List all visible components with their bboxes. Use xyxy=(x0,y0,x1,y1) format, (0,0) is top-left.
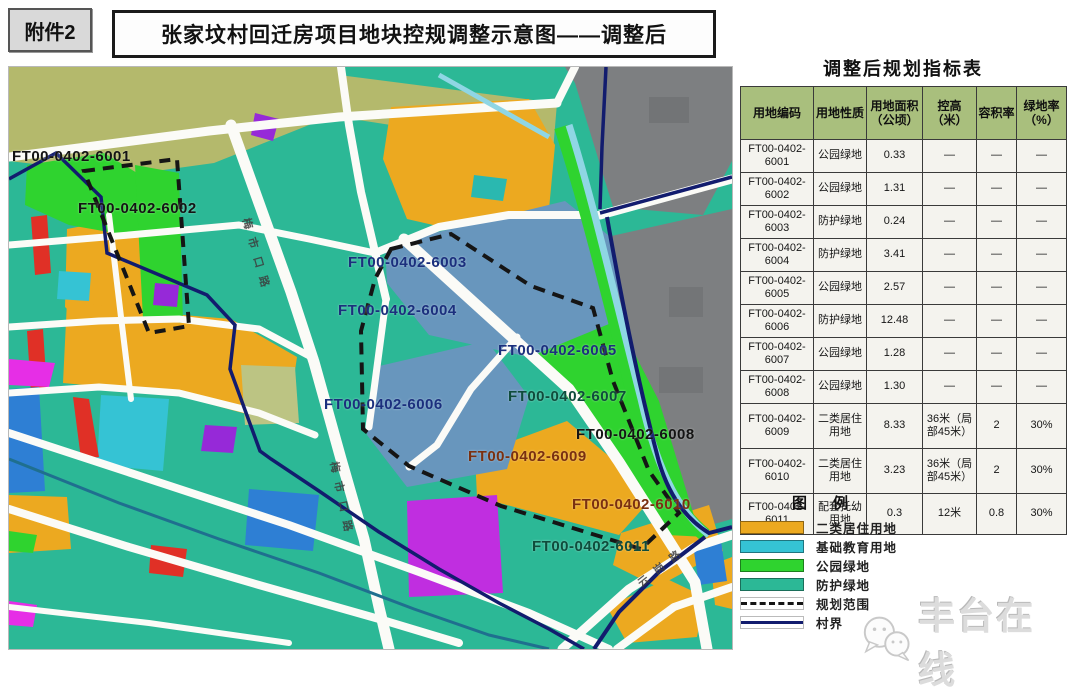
table-cell-use: 公园绿地 xyxy=(814,371,867,404)
table-row: FT00-0402-6006防护绿地12.48——— xyxy=(741,305,1067,338)
legend-swatch-swatch xyxy=(740,540,804,553)
table-cell-code: FT00-0402-6010 xyxy=(741,449,814,494)
table-cell-green: — xyxy=(1017,272,1067,305)
table-row: FT00-0402-6005公园绿地2.57——— xyxy=(741,272,1067,305)
table-cell-use: 公园绿地 xyxy=(814,173,867,206)
watermark-text: 丰台在线 xyxy=(918,586,1070,694)
table-row: FT00-0402-6010二类居住用地3.2336米（局部45米）230% xyxy=(741,449,1067,494)
legend-swatch-swatch xyxy=(740,559,804,572)
table-cell-area: 3.23 xyxy=(867,449,923,494)
watermark: 丰台在线 xyxy=(858,586,1070,694)
table-cell-green: — xyxy=(1017,305,1067,338)
table-cell-far: — xyxy=(977,338,1017,371)
table-cell-height: — xyxy=(923,272,977,305)
planning-map xyxy=(8,66,733,650)
legend-label: 公园绿地 xyxy=(816,556,870,575)
table-cell-use: 公园绿地 xyxy=(814,338,867,371)
table-row: FT00-0402-6007公园绿地1.28——— xyxy=(741,338,1067,371)
page-title: 张家坟村回迁房项目地块控规调整示意图——调整后 xyxy=(161,19,667,49)
map-region-teal-diamond xyxy=(471,175,507,201)
table-row: FT00-0402-6008公园绿地1.30——— xyxy=(741,371,1067,404)
building-hint xyxy=(649,97,689,123)
table-cell-area: 1.28 xyxy=(867,338,923,371)
wechat-icon xyxy=(858,612,918,668)
legend-label: 基础教育用地 xyxy=(816,537,897,556)
table-cell-code: FT00-0402-6002 xyxy=(741,173,814,206)
table-cell-area: 2.57 xyxy=(867,272,923,305)
table-row: FT00-0402-6004防护绿地3.41——— xyxy=(741,239,1067,272)
table-cell-far: — xyxy=(977,173,1017,206)
table-row: FT00-0402-6009二类居住用地8.3336米（局部45米）230% xyxy=(741,404,1067,449)
table-cell-area: 0.24 xyxy=(867,206,923,239)
table-cell-code: FT00-0402-6006 xyxy=(741,305,814,338)
map-region-purple-c xyxy=(201,425,237,453)
table-cell-height: — xyxy=(923,338,977,371)
table-cell-code: FT00-0402-6003 xyxy=(741,206,814,239)
table-cell-code: FT00-0402-6001 xyxy=(741,140,814,173)
table-cell-height: — xyxy=(923,371,977,404)
table-cell-far: — xyxy=(977,305,1017,338)
attachment-label: 附件2 xyxy=(24,16,75,45)
table-cell-code: FT00-0402-6005 xyxy=(741,272,814,305)
building-hint xyxy=(659,367,703,393)
legend-swatch-swatch xyxy=(740,521,804,534)
table-cell-far: — xyxy=(977,140,1017,173)
legend-item: 公园绿地 xyxy=(740,559,1070,572)
table-cell-area: 0.33 xyxy=(867,140,923,173)
table-cell-area: 1.31 xyxy=(867,173,923,206)
table-cell-code: FT00-0402-6008 xyxy=(741,371,814,404)
indicator-table-head: 用地编码用地性质用地面积（公顷）控高（米）容积率绿地率（%） xyxy=(741,87,1067,140)
table-cell-height: — xyxy=(923,305,977,338)
table-cell-use: 公园绿地 xyxy=(814,272,867,305)
table-header-cell: 用地面积（公顷） xyxy=(867,87,923,140)
table-row: FT00-0402-6002公园绿地1.31——— xyxy=(741,173,1067,206)
table-cell-far: 2 xyxy=(977,449,1017,494)
legend-item: 基础教育用地 xyxy=(740,540,1070,553)
table-cell-code: FT00-0402-6009 xyxy=(741,404,814,449)
table-header-cell: 用地性质 xyxy=(814,87,867,140)
table-cell-use: 二类居住用地 xyxy=(814,404,867,449)
table-cell-green: — xyxy=(1017,239,1067,272)
table-header-cell: 绿地率（%） xyxy=(1017,87,1067,140)
table-cell-code: FT00-0402-6004 xyxy=(741,239,814,272)
table-cell-far: — xyxy=(977,206,1017,239)
table-cell-height: — xyxy=(923,239,977,272)
legend-label: 村界 xyxy=(816,613,843,632)
table-cell-far: — xyxy=(977,239,1017,272)
legend-title: 图例 xyxy=(792,492,1070,513)
table-cell-use: 防护绿地 xyxy=(814,305,867,338)
table-cell-height: 36米（局部45米） xyxy=(923,449,977,494)
table-cell-far: — xyxy=(977,371,1017,404)
table-cell-use: 公园绿地 xyxy=(814,140,867,173)
table-cell-height: — xyxy=(923,140,977,173)
table-cell-green: — xyxy=(1017,338,1067,371)
attachment-badge: 附件2 xyxy=(8,8,92,52)
table-cell-green: — xyxy=(1017,206,1067,239)
table-title: 调整后规划指标表 xyxy=(740,55,1066,81)
table-cell-area: 3.41 xyxy=(867,239,923,272)
table-row: FT00-0402-6001公园绿地0.33——— xyxy=(741,140,1067,173)
table-cell-area: 8.33 xyxy=(867,404,923,449)
table-cell-height: 36米（局部45米） xyxy=(923,404,977,449)
map-region-cyan-a xyxy=(57,271,91,301)
table-header-row: 用地编码用地性质用地面积（公顷）控高（米）容积率绿地率（%） xyxy=(741,87,1067,140)
planning-map-svg xyxy=(9,67,732,649)
table-cell-area: 12.48 xyxy=(867,305,923,338)
map-region-magenta-a xyxy=(9,359,55,387)
map-region-cyan-b xyxy=(97,395,169,471)
legend-item: 二类居住用地 xyxy=(740,521,1070,534)
table-cell-use: 二类居住用地 xyxy=(814,449,867,494)
indicator-table: 用地编码用地性质用地面积（公顷）控高（米）容积率绿地率（%） FT00-0402… xyxy=(740,86,1067,535)
table-cell-green: 30% xyxy=(1017,449,1067,494)
table-cell-far: 2 xyxy=(977,404,1017,449)
legend-swatch-solid-line xyxy=(740,616,804,629)
legend-label: 二类居住用地 xyxy=(816,518,897,537)
table-cell-green: 30% xyxy=(1017,404,1067,449)
table-cell-area: 1.30 xyxy=(867,371,923,404)
table-cell-height: — xyxy=(923,206,977,239)
table-cell-use: 防护绿地 xyxy=(814,206,867,239)
table-cell-far: — xyxy=(977,272,1017,305)
building-hint xyxy=(669,287,703,317)
table-cell-use: 防护绿地 xyxy=(814,239,867,272)
table-cell-green: — xyxy=(1017,371,1067,404)
table-cell-green: — xyxy=(1017,173,1067,206)
indicator-table-body: FT00-0402-6001公园绿地0.33———FT00-0402-6002公… xyxy=(741,140,1067,535)
map-region-purple-b xyxy=(153,283,179,307)
table-header-cell: 容积率 xyxy=(977,87,1017,140)
table-header-cell: 控高（米） xyxy=(923,87,977,140)
page-title-box: 张家坟村回迁房项目地块控规调整示意图——调整后 xyxy=(112,10,716,58)
table-cell-code: FT00-0402-6007 xyxy=(741,338,814,371)
table-cell-green: — xyxy=(1017,140,1067,173)
legend-swatch-swatch xyxy=(740,578,804,591)
table-header-cell: 用地编码 xyxy=(741,87,814,140)
legend-swatch-dashed-line xyxy=(740,597,804,610)
table-row: FT00-0402-6003防护绿地0.24——— xyxy=(741,206,1067,239)
table-cell-height: — xyxy=(923,173,977,206)
